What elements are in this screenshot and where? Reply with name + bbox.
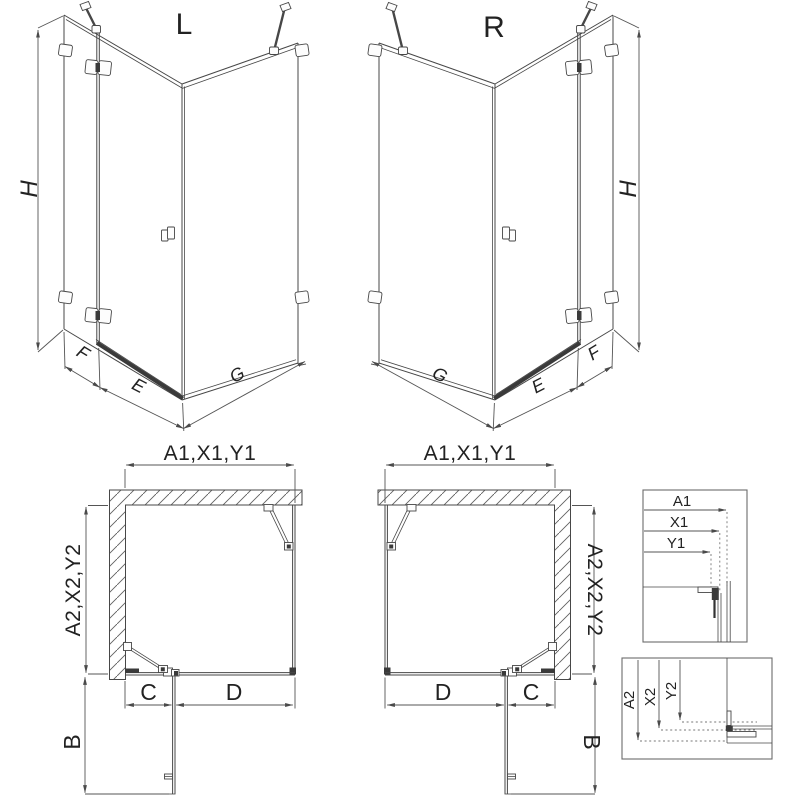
view-3d-right: R H F E G: [368, 2, 642, 432]
dim-label-f-right: F: [584, 341, 605, 364]
plan-width-label-right: A1,X1,Y1: [424, 442, 517, 465]
dim-label-e-right: E: [528, 374, 549, 398]
detail-y1-label: Y1: [667, 535, 685, 552]
detail-x2-label: X2: [642, 688, 659, 706]
dim-label-f-left: F: [73, 341, 94, 364]
view-3d-left: L H F E G: [16, 2, 309, 432]
dim-label-e-left: E: [129, 374, 150, 398]
plan-width-label-left: A1,X1,Y1: [164, 442, 257, 465]
dim-label-g-right: G: [429, 363, 451, 387]
dim-label-b-left: B: [59, 734, 85, 749]
dim-label-b-right: B: [579, 734, 605, 749]
detail-a1-label: A1: [673, 493, 691, 510]
dim-label-h-left: H: [16, 180, 43, 198]
left-view-title: L: [176, 8, 193, 41]
detail-a2-label: A2: [621, 691, 638, 709]
shower-enclosure-diagram: L H F E G R H F E G A1,X1,Y1 A2,X2,Y2 C …: [0, 0, 800, 800]
dim-label-c-left: C: [140, 679, 157, 705]
technical-drawing-canvas: L H F E G R H F E G A1,X1,Y1 A2,X2,Y2 C …: [0, 0, 800, 800]
dim-label-d-right: D: [435, 679, 452, 705]
dim-label-h-right: H: [615, 180, 642, 198]
detail-y2-label: Y2: [663, 682, 680, 700]
right-view-title: R: [483, 11, 505, 44]
dim-label-g-left: G: [226, 363, 248, 387]
dim-label-c-right: C: [523, 679, 540, 705]
detail-box-widths: A1 X1 Y1: [643, 490, 747, 642]
plan-depth-label-left: A2,X2,Y2: [62, 544, 85, 637]
detail-x1-label: X1: [670, 514, 688, 531]
plan-depth-label-right: A2,X2,Y2: [583, 544, 606, 637]
dim-label-d-left: D: [226, 679, 243, 705]
detail-box-depths: A2 X2 Y2: [621, 658, 772, 759]
